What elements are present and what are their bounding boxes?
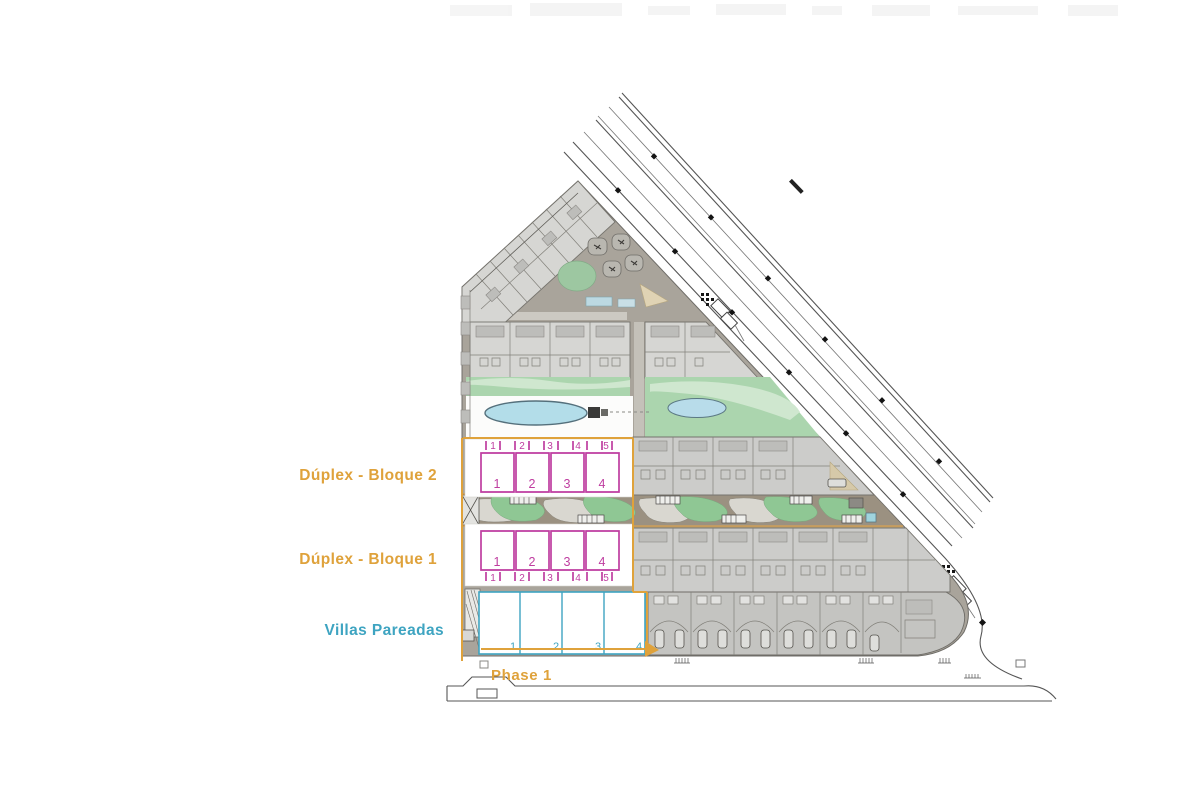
walkway bbox=[634, 322, 644, 438]
apartment-row-a bbox=[633, 437, 874, 495]
unit-number: 4 bbox=[575, 441, 581, 452]
pool-plant-room bbox=[601, 409, 608, 416]
swimming-pool bbox=[485, 401, 587, 425]
label-duplex-bloque-2: Dúplex - Bloque 2 bbox=[299, 467, 437, 484]
green-blob bbox=[558, 261, 596, 291]
top-faint-artifacts bbox=[450, 3, 1118, 16]
unit-number: 3 bbox=[564, 555, 571, 569]
boundary-marker-box bbox=[480, 661, 488, 668]
unit-number: 3 bbox=[564, 477, 571, 491]
car-icon bbox=[828, 479, 846, 487]
unit-number: 2 bbox=[519, 573, 525, 584]
unit-number: 1 bbox=[494, 555, 501, 569]
unit-number: 4 bbox=[599, 477, 606, 491]
villas-pareadas-zone: 1 2 3 4 bbox=[479, 592, 645, 654]
unit-number: 2 bbox=[553, 641, 559, 653]
unit-number: 2 bbox=[529, 477, 536, 491]
unit-number: 4 bbox=[636, 641, 642, 653]
label-duplex-bloque-1: Dúplex - Bloque 1 bbox=[299, 551, 437, 568]
townhouse-row-bottom bbox=[648, 592, 965, 655]
unit-number: 1 bbox=[490, 573, 496, 584]
dimension-ticks bbox=[674, 658, 981, 678]
siteplan-drawing: 1 2 3 4 5 1 2 3 4 1 2 3 4 1 2 3 4 5 1 2 … bbox=[0, 0, 1200, 800]
duplex-bloque-1-zone: 1 2 3 4 1 2 3 4 5 bbox=[465, 524, 633, 586]
apartment-row-b bbox=[633, 528, 950, 592]
landscape-strip bbox=[462, 494, 903, 526]
unit-number: 4 bbox=[575, 573, 581, 584]
townhouse-row-1 bbox=[470, 322, 758, 378]
water-feature bbox=[586, 297, 612, 306]
unit-number: 5 bbox=[603, 441, 609, 452]
unit-number: 4 bbox=[599, 555, 606, 569]
unit-number: 2 bbox=[519, 441, 525, 452]
label-phase-1: Phase 1 bbox=[491, 667, 552, 684]
unit-number: 5 bbox=[603, 573, 609, 584]
unit-number: 1 bbox=[490, 441, 496, 452]
duplex-bloque-2-zone: 1 2 3 4 5 1 2 3 4 bbox=[465, 439, 633, 497]
unit-number: 1 bbox=[494, 477, 501, 491]
pool-plant-room bbox=[588, 407, 600, 418]
unit-number: 2 bbox=[529, 555, 536, 569]
label-villas-pareadas: Villas Pareadas bbox=[325, 622, 444, 639]
kiosk bbox=[849, 498, 863, 508]
unit-number: 3 bbox=[547, 573, 553, 584]
unit-number: 3 bbox=[595, 641, 601, 653]
pond bbox=[668, 399, 726, 418]
street-small-box bbox=[1016, 660, 1025, 667]
unit-number: 1 bbox=[510, 641, 516, 653]
water-feature bbox=[618, 299, 635, 307]
unit-number: 3 bbox=[547, 441, 553, 452]
street-utility-box bbox=[477, 689, 497, 698]
hatch-box bbox=[462, 495, 479, 525]
siteplan-page: 1 2 3 4 5 1 2 3 4 1 2 3 4 1 2 3 4 5 1 2 … bbox=[0, 0, 1200, 800]
small-pool bbox=[866, 513, 876, 522]
